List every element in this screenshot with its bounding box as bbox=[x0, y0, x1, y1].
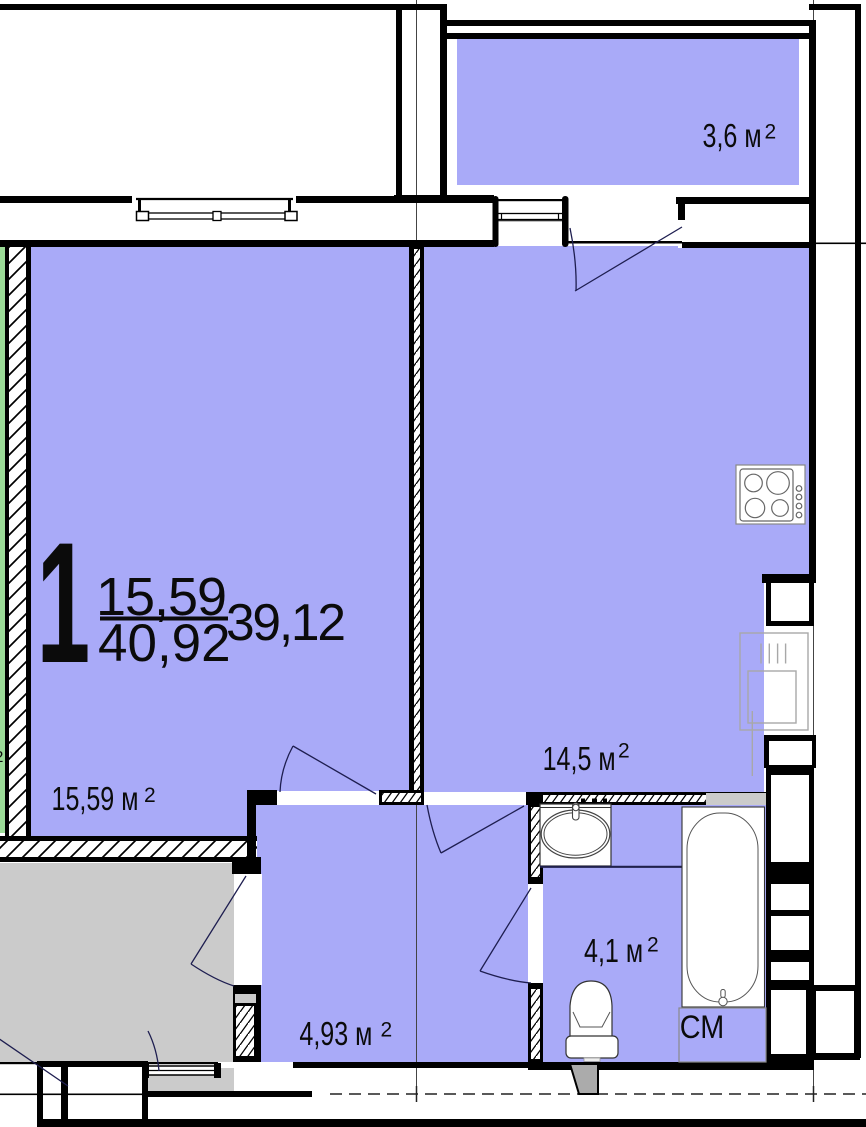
svg-text:2: 2 bbox=[618, 740, 630, 763]
svg-text:2: 2 bbox=[647, 933, 659, 956]
svg-text:40,92: 40,92 bbox=[98, 614, 231, 673]
svg-text:2: 2 bbox=[144, 784, 156, 807]
svg-text:2: 2 bbox=[381, 1019, 393, 1042]
svg-text:СМ: СМ bbox=[680, 1010, 724, 1046]
svg-text:3,6 м: 3,6 м bbox=[703, 118, 762, 155]
svg-text:2: 2 bbox=[765, 121, 777, 144]
svg-text:2: 2 bbox=[0, 749, 4, 766]
svg-text:4,1 м: 4,1 м bbox=[584, 933, 643, 970]
svg-text:1: 1 bbox=[37, 507, 91, 699]
svg-text:14,5 м: 14,5 м bbox=[543, 741, 616, 778]
svg-text:15,59 м: 15,59 м bbox=[52, 781, 139, 818]
svg-text:39,12: 39,12 bbox=[226, 593, 346, 651]
svg-text:4,93 м: 4,93 м bbox=[299, 1016, 372, 1053]
